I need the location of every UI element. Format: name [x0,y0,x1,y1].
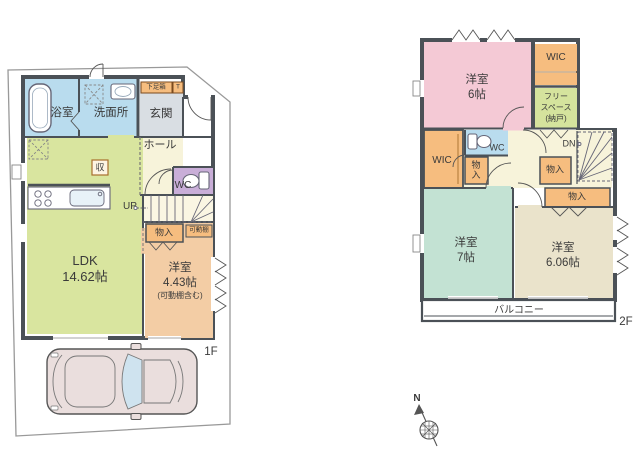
bedroom1-door-gap [503,127,524,131]
washroom-label: 洗面所 [94,107,129,119]
room-stairs1 [143,195,213,222]
compass-icon [414,404,438,446]
wc2-label: WC [490,143,505,152]
hall-label: ホール [144,140,177,152]
closet1-label: 物入 [155,228,173,237]
floor2-label: 2F [619,316,632,328]
closet-mid-label: 物入 [546,165,564,174]
bedroom1f-note-label: (可動棚含む) [157,292,202,300]
bedroom2f1-name-label: 洋室 [466,74,489,86]
shoe-cabinet-t-label: T [176,85,180,92]
closet-wide-label: 物入 [568,192,586,201]
closet-small-label: 物入 [471,160,482,180]
room-wic-top-closet [535,73,577,85]
bedroom2f1-size-label: 6帖 [468,89,486,101]
bedroom2f3-name-label: 洋室 [552,242,575,254]
ldk-name-label: LDK [72,254,97,268]
storage-mark-label: 収 [95,163,104,172]
free-space-label-3: (納戸) [545,115,566,123]
floor2-plan [413,30,628,321]
dn-label: DN [563,139,576,148]
shoe-cabinet-label: 下足箱 [146,85,166,92]
room-ldk [27,137,143,334]
bathtub-icon [29,84,51,132]
north-label: N [413,394,420,405]
bedroom1f-name-label: 洋室 [169,262,192,274]
bedroom3-door-gap [518,205,542,209]
free-space-label-2: スペース [540,104,571,112]
wc1-label: WC [175,181,192,192]
movable-shelf-label: 可動棚 [189,228,209,235]
wic-top-label: WIC [546,53,565,64]
toilet2-icon [468,134,491,149]
washbasin-icon [111,84,135,99]
car-icon [47,344,197,420]
floor1-label: 1F [204,346,217,358]
bedroom2-door-gap [486,186,511,190]
balcony-label: バルコニー [494,306,544,317]
ldk-size-label: 14.62帖 [62,270,108,284]
bedroom1f-size-label: 4.43帖 [163,277,197,289]
entrance-label: 玄関 [150,108,173,120]
washroom-door-gap [108,135,134,139]
floorplan-drawing [0,0,640,452]
kitchen-counter-icon [28,185,110,209]
bedroom2f3-size-label: 6.06帖 [546,257,580,269]
bath-label: 浴室 [51,107,74,119]
bedroom2f2-name-label: 洋室 [455,237,478,249]
floor1-plan [8,64,230,436]
bedroom2f2-size-label: 7帖 [457,252,475,264]
wic-left-label: WIC [432,156,451,167]
floorplan-canvas: 浴室 洗面所 玄関 下足箱 T ホール WC UP 収 LDK 14.62帖 物… [0,0,640,452]
up-label: UP [123,202,137,213]
wic-freespace-wall [531,42,535,128]
free-space-label-1: フリー [544,93,568,101]
